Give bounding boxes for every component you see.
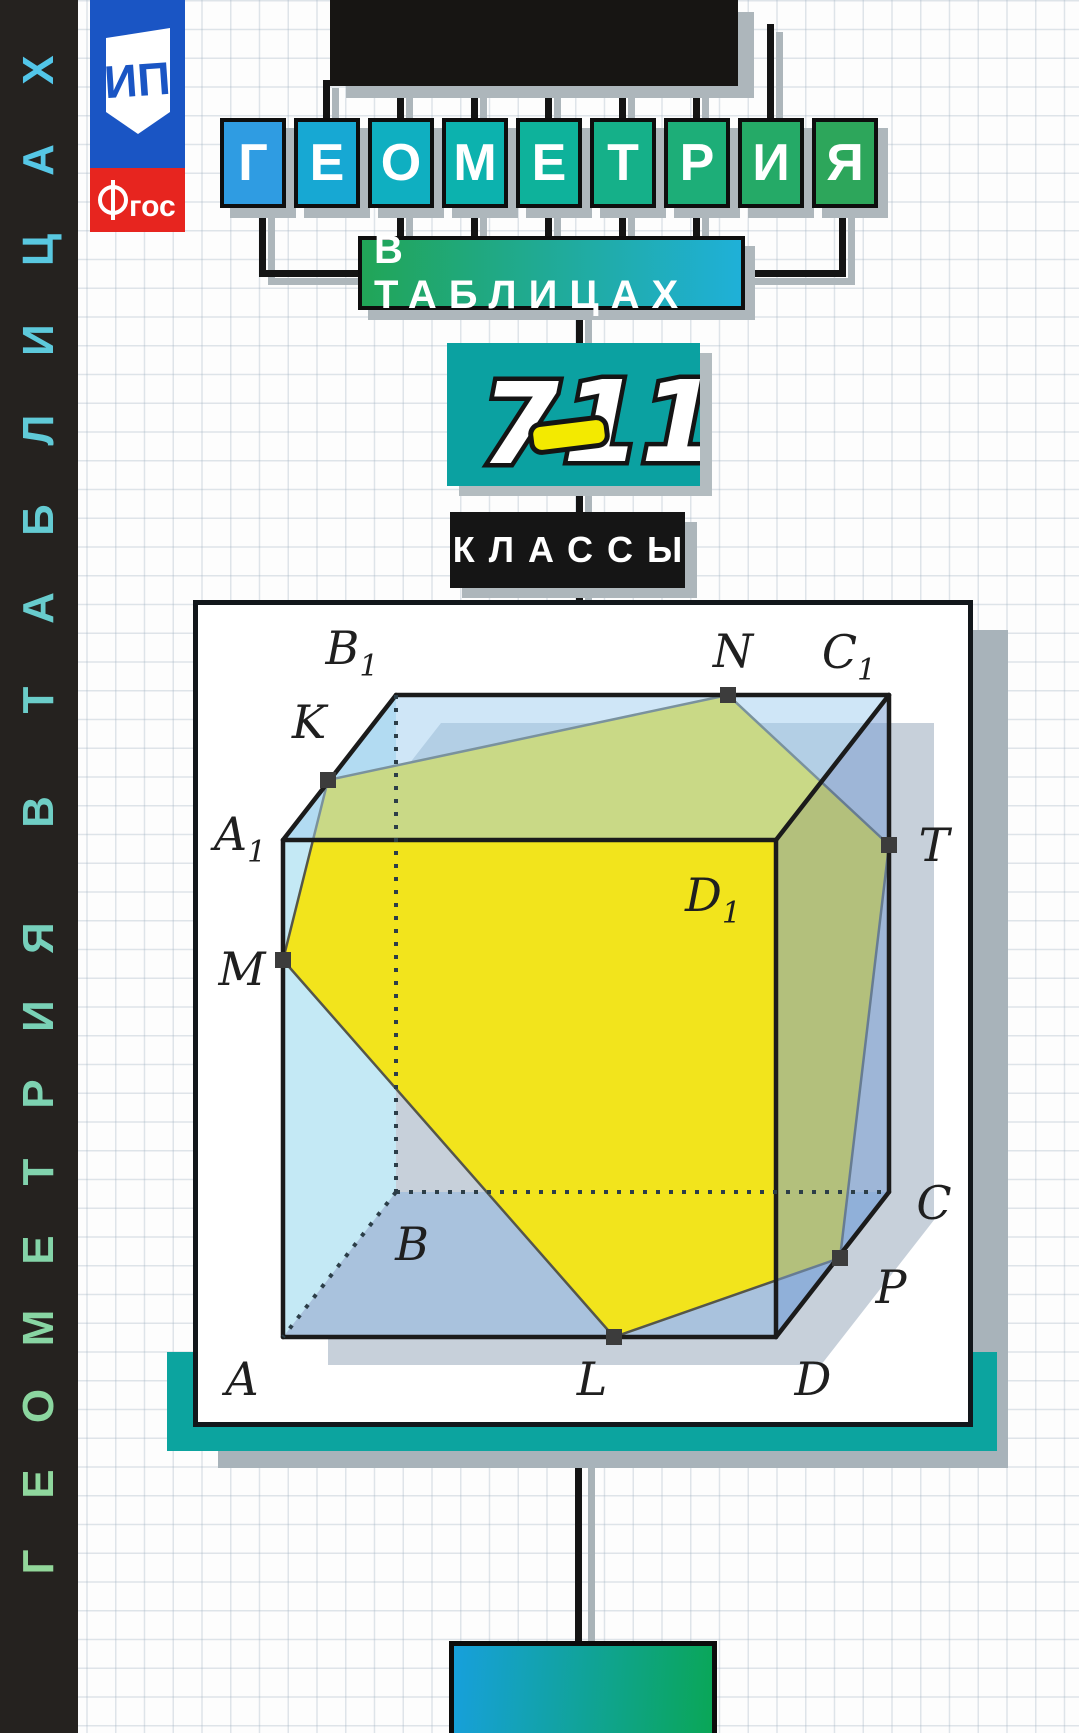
connector-mid-2: [576, 484, 583, 512]
spine-letter: Т: [17, 661, 61, 739]
spine-letter: Т: [17, 1133, 61, 1211]
connector-top-5: [619, 80, 626, 122]
point-marker-L: [606, 1329, 622, 1345]
spine-letter: О: [17, 1367, 61, 1445]
spine-letter: Я: [17, 899, 61, 977]
top-black-box: [330, 0, 738, 86]
classes-text: КЛАССЫ: [453, 529, 697, 571]
spine-letter: А: [17, 569, 61, 647]
spine-letter: Ц: [17, 211, 61, 289]
vertex-label-B: B: [394, 1217, 429, 1271]
point-marker-T: [881, 837, 897, 853]
vertex-label-P: P: [875, 1260, 908, 1314]
figure-panel: B1NC1KA1D1TMBCPALD: [193, 600, 973, 1427]
connector-right-wrap-v: [839, 204, 846, 277]
spine-letter: Е: [17, 1445, 61, 1523]
fgos-logo: гос: [90, 168, 185, 232]
title-letter-box: Т: [590, 118, 656, 208]
title-letter-box: Е: [516, 118, 582, 208]
title-letter-box: Г: [220, 118, 286, 208]
spine-letter: Х: [17, 31, 61, 109]
subtitle-text: В ТАБЛИЦАХ: [374, 228, 741, 318]
spine-letter: И: [17, 977, 61, 1055]
title-letter-box: Р: [664, 118, 730, 208]
publisher-logo: ИП: [90, 0, 185, 168]
grades-numbers: 7 11: [447, 343, 700, 486]
connector-top-6: [693, 80, 700, 122]
vertex-label-C: C: [916, 1176, 951, 1230]
point-marker-K: [320, 772, 336, 788]
connector-top-2: [397, 80, 404, 122]
spine-letter: И: [17, 301, 61, 379]
spine-letter: М: [17, 1289, 61, 1367]
vertex-label-L: L: [576, 1352, 608, 1406]
publisher-monogram: ИП: [103, 52, 173, 108]
spine-bar: ХАЦИЛБАТВЯИРТЕМОЕГ: [0, 0, 78, 1733]
spine-letter: Е: [17, 1211, 61, 1289]
point-marker-M: [275, 952, 291, 968]
vertex-label-T: T: [919, 818, 953, 872]
spine-letter: Р: [17, 1055, 61, 1133]
connector-bottom: [575, 1451, 582, 1643]
vertex-label-B1: B1: [325, 621, 379, 684]
vertex-label-N: N: [712, 624, 755, 678]
cube-cross-section-figure: B1NC1KA1D1TMBCPALD: [198, 605, 968, 1422]
title-letter-box: М: [442, 118, 508, 208]
spine-letter: Г: [17, 1523, 61, 1601]
connector-top-4: [545, 80, 552, 122]
point-marker-N: [720, 687, 736, 703]
grades-box: 7 11: [447, 343, 700, 486]
fgos-icon: гос: [95, 176, 181, 224]
connector-left-wrap-v: [259, 204, 266, 277]
spine-letter: А: [17, 121, 61, 199]
point-marker-P: [832, 1250, 848, 1266]
vertex-label-C1: C1: [822, 625, 876, 688]
title-letter-box: Я: [812, 118, 878, 208]
vertex-label-K: K: [291, 695, 329, 749]
classes-box: КЛАССЫ: [450, 512, 685, 588]
title-letter-box: О: [368, 118, 434, 208]
spine-letter: Л: [17, 391, 61, 469]
connector-top-3: [471, 80, 478, 122]
connector-top-1: [323, 80, 330, 122]
fgos-text: гос: [129, 190, 176, 223]
subtitle-box: В ТАБЛИЦАХ: [358, 236, 745, 310]
spine-letter: В: [17, 773, 61, 851]
bottom-gradient-box: [449, 1641, 717, 1733]
grades-dash: [530, 416, 609, 453]
vertex-label-A1: A1: [210, 807, 266, 870]
prosveshchenie-logo-icon: ИП: [90, 0, 185, 168]
vertex-label-A: A: [221, 1352, 258, 1406]
book-cover: { "cover": { "title": "ГЕОМЕТРИЯ", "subt…: [0, 0, 1079, 1733]
connector-top-7: [767, 24, 774, 122]
connector-left-wrap-h: [259, 270, 364, 277]
spine-letter: Б: [17, 481, 61, 559]
title-letter-box: И: [738, 118, 804, 208]
vertex-label-M: M: [217, 942, 267, 996]
connector-right-wrap-h: [745, 270, 846, 277]
title-letter-box: Е: [294, 118, 360, 208]
vertex-label-D: D: [794, 1352, 832, 1406]
